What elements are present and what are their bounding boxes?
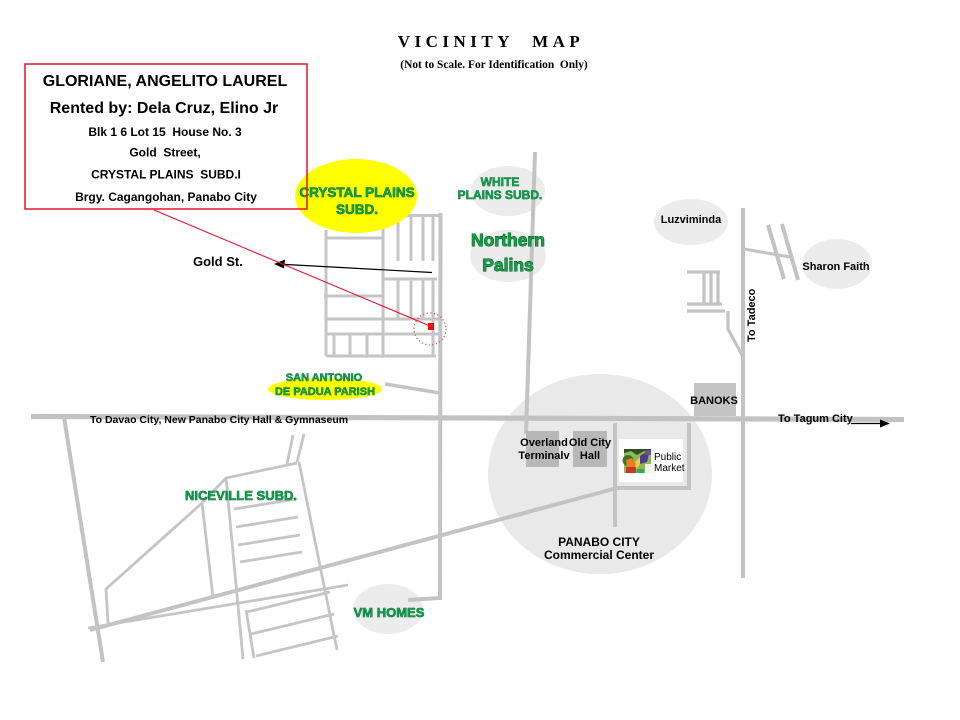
svg-text:GLORIANE, ANGELITO LAUREL: GLORIANE, ANGELITO LAUREL (43, 73, 288, 90)
svg-text:Hall: Hall (580, 450, 600, 462)
svg-text:CRYSTAL PLAINS: CRYSTAL PLAINS (299, 185, 414, 200)
svg-text:(Not to Scale. For Identificat: (Not to Scale. For Identification Only) (400, 59, 588, 71)
svg-text:Old City: Old City (569, 437, 612, 449)
svg-text:SUBD.: SUBD. (336, 202, 378, 217)
svg-text:Public: Public (654, 452, 681, 463)
svg-text:Gold St.: Gold St. (193, 254, 243, 269)
svg-text:Commercial Center: Commercial Center (544, 548, 654, 562)
svg-text:Rented by: Dela Cruz, Elino Jr: Rented by: Dela Cruz, Elino Jr (50, 100, 278, 117)
svg-text:PANABO CITY: PANABO CITY (558, 535, 640, 549)
svg-text:WHITE: WHITE (481, 175, 520, 189)
svg-text:BANOKS: BANOKS (690, 395, 738, 407)
svg-text:PLAINS SUBD.: PLAINS SUBD. (458, 188, 543, 202)
svg-text:Sharon Faith: Sharon Faith (802, 261, 870, 273)
svg-text:CRYSTAL PLAINS SUBD.I: CRYSTAL PLAINS SUBD.I (91, 168, 241, 182)
svg-text:To Tadeco: To Tadeco (746, 288, 758, 342)
svg-text:To Davao City, New Panabo City: To Davao City, New Panabo City Hall & Gy… (90, 414, 348, 426)
svg-text:SAN ANTONIO: SAN ANTONIO (286, 372, 363, 384)
svg-text:Terminalv: Terminalv (518, 450, 570, 462)
svg-text:VICINITY MAP: VICINITY MAP (398, 32, 585, 51)
svg-text:Blk 1 6 Lot 15 House No. 3: Blk 1 6 Lot 15 House No. 3 (88, 125, 242, 139)
svg-text:Brgy. Cagangohan, Panabo City: Brgy. Cagangohan, Panabo City (75, 190, 257, 204)
svg-text:To Tagum City: To Tagum City (778, 413, 854, 425)
svg-text:DE PADUA PARISH: DE PADUA PARISH (275, 386, 375, 398)
svg-text:Overland: Overland (520, 437, 568, 449)
svg-text:NICEVILLE SUBD.: NICEVILLE SUBD. (185, 488, 297, 503)
svg-text:Gold Street,: Gold Street, (129, 146, 200, 160)
svg-text:Market: Market (654, 463, 685, 474)
svg-text:Northern: Northern (471, 230, 545, 250)
svg-text:Luzviminda: Luzviminda (661, 214, 722, 226)
svg-text:Palins: Palins (482, 255, 534, 275)
svg-text:VM HOMES: VM HOMES (354, 605, 425, 620)
